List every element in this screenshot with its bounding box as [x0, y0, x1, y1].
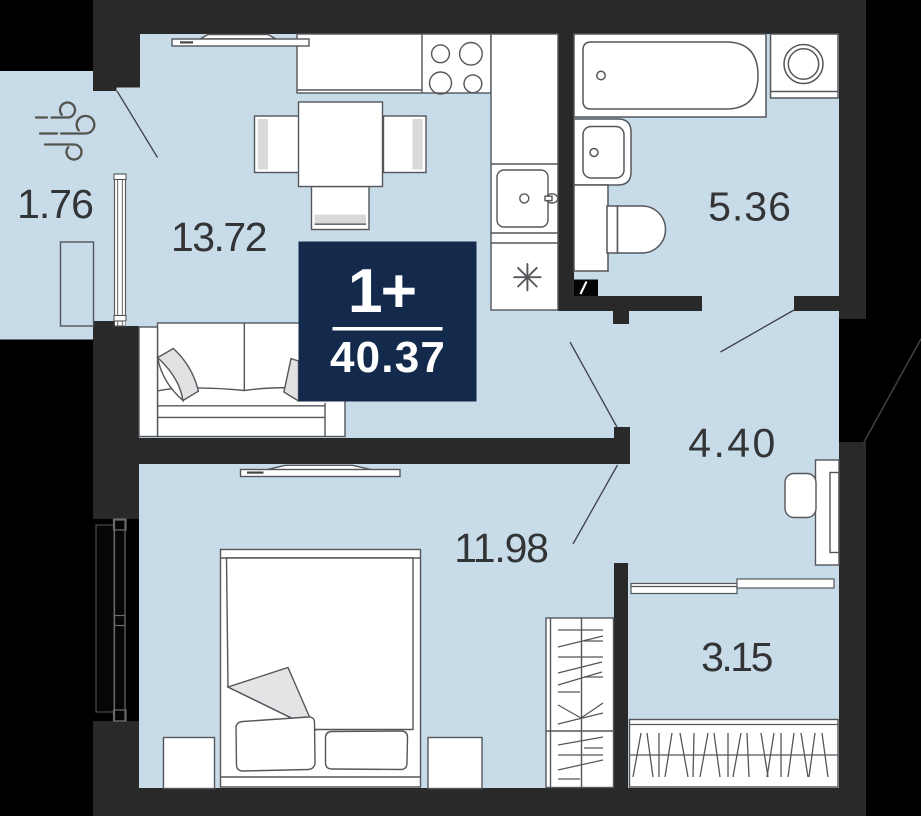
svg-text:13.72: 13.72	[171, 214, 266, 260]
svg-text:1+: 1+	[348, 256, 415, 326]
svg-text:1.76: 1.76	[17, 181, 93, 227]
svg-text:11.98: 11.98	[454, 525, 548, 571]
svg-text:5.36: 5.36	[708, 184, 792, 230]
svg-text:4.40: 4.40	[688, 420, 777, 466]
svg-text:40.37: 40.37	[330, 333, 446, 382]
svg-text:3.15: 3.15	[701, 634, 772, 680]
